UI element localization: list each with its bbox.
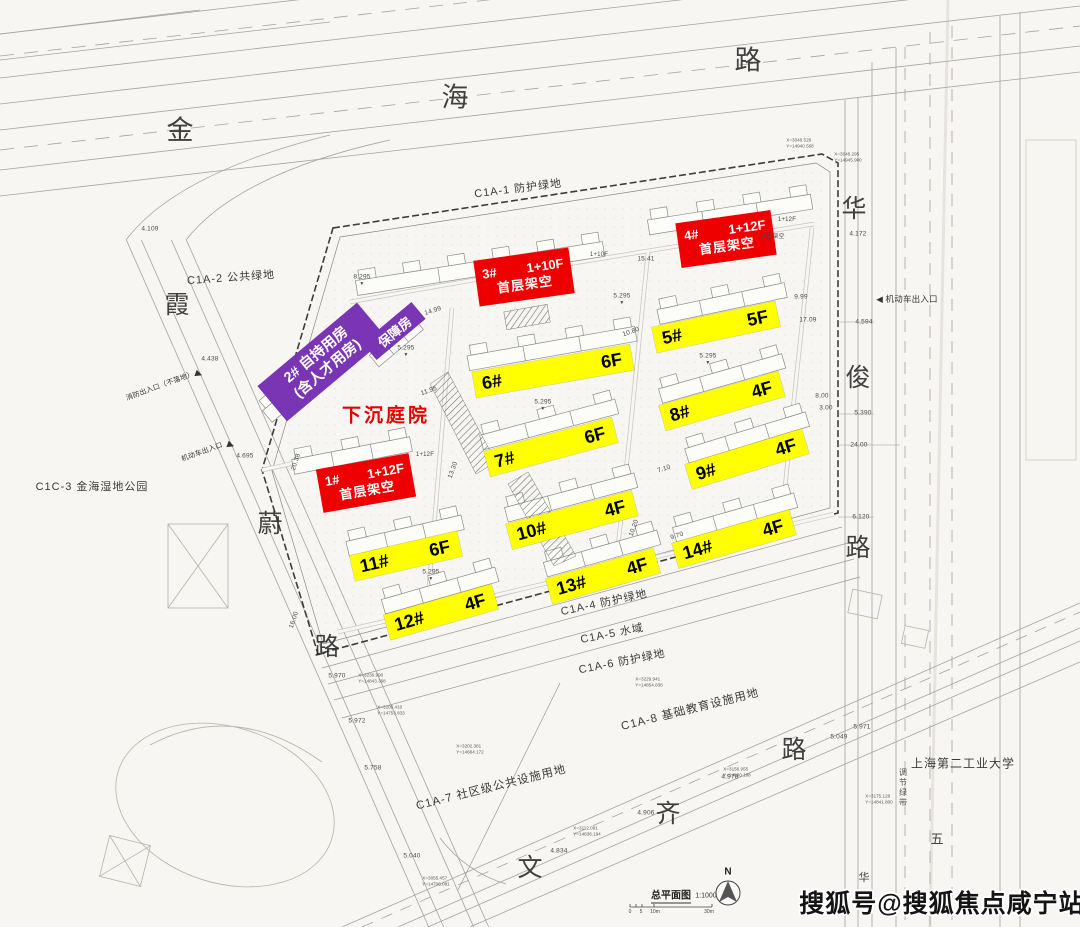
coord-y: Y=14841.800 (865, 799, 892, 805)
elevation-annotation: 4.594 (855, 319, 872, 326)
parcel-label: C1A-7 社区级公共设施用地 (414, 761, 568, 814)
elevation-annotation: 5.295 (699, 353, 716, 360)
building-floor-label: 11# 6F (349, 531, 462, 581)
elevation-annotation: 14.99 (424, 305, 443, 317)
coordinate-annotation: X=3229.941 Y=14854.838 (635, 677, 662, 688)
watermark: 搜狐号@搜狐焦点咸宁站 (799, 884, 1080, 920)
plan-title: 总平面图 (651, 887, 691, 904)
elevation-annotation: ▼ (619, 300, 624, 306)
coord-y: Y=14800.188 (723, 772, 750, 778)
elevation-annotation: 20.38 (290, 453, 302, 472)
elevation-annotation: ▼ (428, 576, 433, 582)
vertical-note: 调节绿带 (898, 768, 909, 808)
entrance-label: ▶ (226, 439, 236, 452)
parcel-label: C1A-5 水域 (579, 619, 645, 647)
elevation-annotation: 11.95 (420, 385, 438, 397)
building-floors: 4F (749, 377, 775, 403)
building-floor-label: 5# 5F (652, 301, 781, 353)
north-label: N (724, 867, 731, 878)
building-number: 9# (693, 459, 718, 485)
stilt-building-label: 3# 1+10F 首层架空 (473, 248, 574, 307)
building-floors: 4F (624, 553, 650, 579)
road-name-char: 路 (845, 528, 870, 564)
building-floor-label: 7# 6F (484, 417, 618, 476)
building-floor-label: 8# 4F (659, 371, 785, 430)
road-name-char: 华 (841, 189, 866, 225)
coord-y: Y=14854.838 (635, 682, 662, 688)
elevation-annotation: 4.438 (201, 356, 218, 363)
building-floors: 4F (602, 496, 628, 522)
parcel-label: C1A-1 防护绿地 (473, 175, 563, 202)
parcel-label: C1A-2 公共绿地 (186, 266, 275, 288)
entrance-label: ◀ 机动车出入口 (876, 293, 938, 305)
scale-tick-label: 10m (650, 909, 660, 915)
building-floor-label: 9# 4F (685, 429, 809, 490)
building-number: 13# (554, 571, 589, 599)
road-name-char: 齐 (655, 794, 680, 830)
site-plan-screenshot: 金海路华俊路霞蔚路文齐路五华C1A-1 防护绿地C1A-2 公共绿地C1C-3 … (0, 0, 1080, 927)
road-name-char: 五 (930, 829, 943, 848)
elevation-annotation: 17.09 (799, 317, 816, 324)
building-floors: 4F (462, 589, 488, 615)
road-name-char: 路 (314, 627, 339, 663)
coord-x: X=3236.990 (358, 673, 385, 679)
scale-tick-label: 0 (629, 909, 632, 915)
elevation-annotation: ▼ (403, 352, 408, 358)
elevation-annotation: 3.00 (819, 405, 832, 412)
building-number: 7# (492, 447, 517, 472)
elevation-annotation: 4.695 (236, 453, 253, 460)
elevation-annotation: 5.295 (613, 293, 630, 300)
elevation-annotation: 4.172 (849, 231, 866, 238)
building-number: 6# (480, 370, 503, 394)
label-layer: 金海路华俊路霞蔚路文齐路五华C1A-1 防护绿地C1A-2 公共绿地C1C-3 … (0, 0, 1080, 927)
elevation-annotation: 5.040 (403, 853, 420, 860)
coord-y: Y=14843.368 (358, 678, 385, 684)
building-number: 12# (392, 607, 427, 635)
elevation-annotation: 8.295 (353, 274, 370, 281)
elevation-annotation: 首层架空 (762, 232, 785, 240)
coord-x: X=3046.295 (834, 152, 861, 158)
elevation-annotation: 5.972 (348, 718, 365, 725)
plan-scale: 1:1000 (695, 893, 716, 900)
sunken-courtyard-label: 下沉庭院 (342, 401, 430, 428)
entrance-label: ▶ (194, 368, 204, 381)
building-floor-label: 10# 4F (506, 491, 638, 550)
coordinate-annotation: X=3236.990 Y=14843.368 (358, 673, 385, 684)
coord-x: X=3202.381 (456, 744, 483, 750)
entrance-label: 机动车出入口 (180, 440, 224, 464)
elevation-annotation: 1+12F (778, 217, 796, 223)
building-number: 10# (514, 517, 548, 545)
elevation-annotation: 15.41 (637, 256, 654, 263)
coord-x: X=3112.091 (573, 826, 600, 832)
coord-y: Y=14684.172 (456, 749, 483, 755)
road-name-char: 海 (442, 76, 469, 115)
building-number: 3# (481, 265, 497, 282)
elevation-annotation: 5.049 (830, 734, 847, 741)
elevation-annotation: 4.834 (550, 848, 567, 855)
elevation-annotation: 13.30 (447, 461, 459, 480)
coord-y: Y=14753.833 (377, 710, 404, 716)
building-floor-label: 6# 6F (472, 344, 634, 397)
coordinate-annotation: X=3055.457 Y=14706.081 (422, 876, 449, 887)
building-number: 14# (680, 535, 715, 563)
elevation-annotation: 5.390 (854, 410, 871, 417)
coordinate-annotation: X=3046.295 Y=14945.900 (834, 152, 861, 163)
coordinate-annotation: X=3175.128 Y=14841.800 (865, 794, 892, 805)
elevation-annotation: 7.10 (657, 464, 672, 475)
road-name-char: 金 (167, 109, 194, 148)
building-floors: 6F (582, 422, 608, 448)
coordinate-annotation: X=3156.955 Y=14800.188 (723, 767, 750, 778)
elevation-annotation: ▼ (705, 360, 710, 366)
parcel-label: 上海第二工业大学 (911, 755, 1015, 772)
elevation-annotation: 10.20 (628, 519, 640, 538)
scale-tick-label: 5 (640, 909, 643, 915)
coordinate-annotation: X=3112.091 Y=14836.194 (573, 826, 600, 837)
elevation-annotation: 5.295 (534, 399, 551, 406)
road-name-char: 俊 (845, 358, 870, 394)
building-number: 11# (358, 550, 391, 577)
road-name-char: 霞 (164, 285, 189, 321)
parcel-label: C1A-8 基础教育设施用地 (619, 684, 760, 734)
coord-y: Y=14940.568 (786, 143, 813, 149)
scale-tick-label: 30m (704, 909, 714, 915)
coord-x: X=3048.529 (786, 138, 813, 144)
coord-x: X=3209.410 (377, 705, 404, 711)
elevation-annotation: 5.971 (853, 724, 870, 731)
stilt-building-label: 1# 1+12F 首层架空 (316, 453, 416, 513)
elevation-annotation: 16.00 (288, 611, 300, 630)
coordinate-annotation: X=3209.410 Y=14753.833 (377, 705, 404, 716)
coordinate-annotation: X=3202.381 Y=14684.172 (456, 744, 483, 755)
building-floor-label: 12# 4F (384, 584, 499, 640)
elevation-annotation: ▼ (359, 281, 364, 287)
road-name-char: 路 (781, 730, 806, 766)
elevation-annotation: 1+10F (590, 252, 608, 258)
coord-y: Y=14836.194 (573, 831, 600, 837)
elevation-annotation: 5.970 (328, 673, 345, 680)
building-floors: 5F (745, 306, 770, 331)
elevation-annotation: 6.120 (852, 514, 869, 521)
building-floors: 4F (773, 434, 799, 460)
elevation-annotation: 9.99 (794, 294, 807, 301)
coord-y: Y=14706.081 (422, 881, 449, 887)
coord-x: X=3175.128 (865, 794, 892, 800)
coord-y: Y=14945.900 (834, 157, 861, 163)
elevation-annotation: 5.758 (364, 765, 381, 772)
elevation-annotation: ▼ (540, 406, 545, 412)
elevation-annotation: 5.295 (397, 345, 414, 352)
elevation-annotation: 5.295 (422, 569, 439, 576)
elevation-annotation: 24.00 (850, 442, 867, 449)
building-floor-label: 14# 4F (672, 510, 796, 569)
parcel-label: C1A-6 防护绿地 (577, 645, 667, 678)
elevation-annotation: 4.109 (141, 226, 158, 233)
entrance-label: 消防出入口（不落地） (124, 369, 195, 403)
road-name-char: 华 (859, 869, 870, 885)
coord-x: X=3055.457 (422, 876, 449, 882)
elevation-annotation: 8.00 (815, 393, 828, 400)
elevation-annotation: 10.80 (622, 326, 641, 338)
building-floors: 6F (427, 536, 452, 561)
elevation-annotation: 4.906 (637, 810, 654, 817)
building-number: 5# (660, 324, 684, 349)
coordinate-annotation: X=3048.529 Y=14940.568 (786, 138, 813, 149)
road-name-char: 文 (517, 848, 542, 884)
building-floors: 4F (760, 515, 786, 541)
building-floors: 6F (599, 349, 623, 373)
road-name-char: 路 (735, 39, 762, 78)
building-number: 8# (667, 400, 692, 426)
elevation-annotation: 1+12F (416, 452, 434, 458)
parcel-label: C1C-3 金海湿地公园 (36, 478, 149, 494)
coord-x: X=3229.941 (635, 677, 662, 683)
road-name-char: 蔚 (257, 504, 282, 540)
coord-x: X=3156.955 (723, 767, 750, 773)
